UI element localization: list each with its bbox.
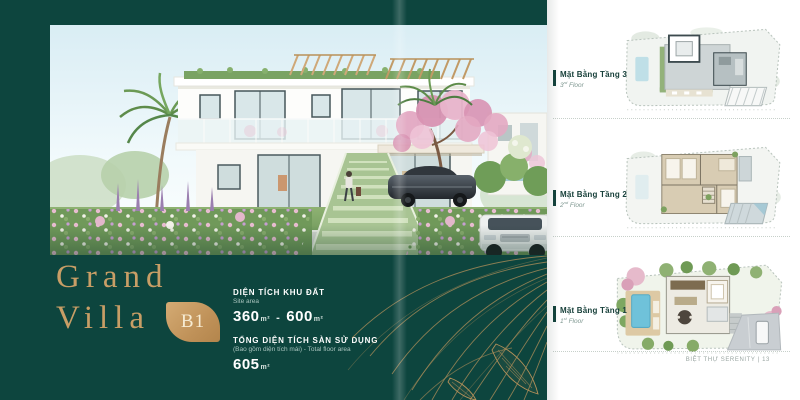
floor-plan-2-graphic (615, 138, 790, 230)
plan-separator-1 (553, 118, 790, 119)
villa-code-badge: B1 (166, 302, 220, 342)
plan-3-label-bar (553, 70, 556, 86)
villa-title-block: Grand Villa B1 (56, 260, 220, 342)
plan-separator-2 (553, 236, 790, 237)
plan-1-label: Mặt Bằng Tầng 1 1st Floor (553, 306, 627, 325)
brochure-spread: Grand Villa B1 DIỆN TÍCH KHU ĐẤT Site ar… (0, 0, 800, 400)
left-page: Grand Villa B1 DIỆN TÍCH KHU ĐẤT Site ar… (0, 0, 547, 400)
plan-3-title: Mặt Bằng Tầng 3 (560, 70, 627, 79)
villa-title-line2: Villa (56, 301, 150, 335)
plan-1-label-bar (553, 306, 556, 322)
plan-3-subtitle: 3rd Floor (560, 80, 627, 89)
villa-title-line1: Grand (56, 260, 220, 294)
plan-1-subtitle: 1st Floor (560, 316, 627, 325)
floor-plan-3-graphic (615, 20, 790, 112)
gold-feather-ornament (300, 252, 547, 400)
plan-3-label: Mặt Bằng Tầng 3 3rd Floor (553, 70, 627, 89)
page-footer: BIỆT THỰ SERENITY | 13 (686, 357, 770, 363)
right-page: Mặt Bằng Tầng 3 3rd Floor (547, 0, 800, 400)
villa-photo-illustration (50, 25, 547, 255)
floor-plan-1-graphic (607, 256, 791, 355)
plan-2-label-bar (553, 190, 556, 206)
plan-2-label: Mặt Bằng Tầng 2 2nd Floor (553, 190, 627, 209)
plan-separator-3 (553, 351, 790, 352)
plan-2-title: Mặt Bằng Tầng 2 (560, 190, 627, 199)
plan-1-title: Mặt Bằng Tầng 1 (560, 306, 627, 315)
villa-photo (50, 25, 547, 255)
plan-2-subtitle: 2nd Floor (560, 200, 627, 209)
